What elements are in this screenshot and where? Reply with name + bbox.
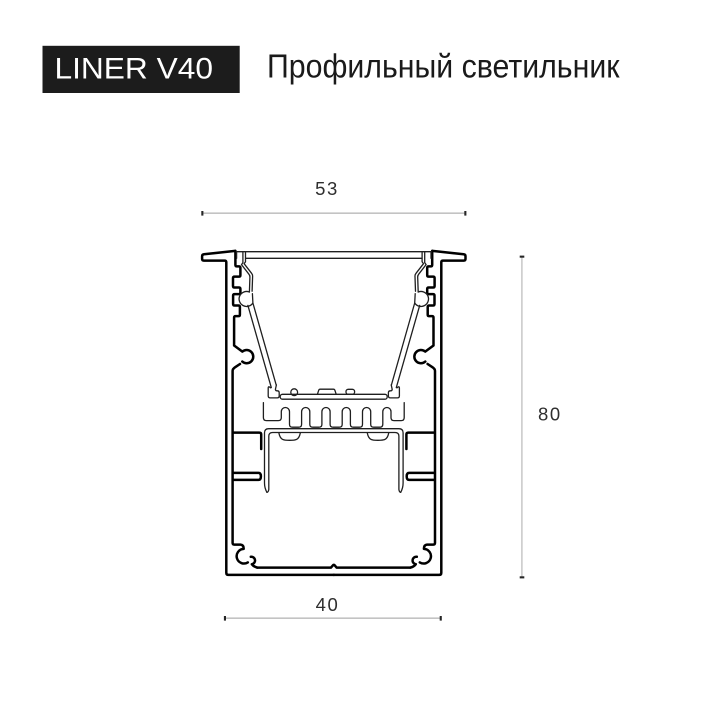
svg-text:80: 80 xyxy=(538,403,562,424)
svg-text:40: 40 xyxy=(316,594,340,615)
svg-text:Профильный светильник: Профильный светильник xyxy=(267,49,620,86)
svg-text:LINER V40: LINER V40 xyxy=(55,52,214,85)
svg-text:53: 53 xyxy=(315,178,339,199)
